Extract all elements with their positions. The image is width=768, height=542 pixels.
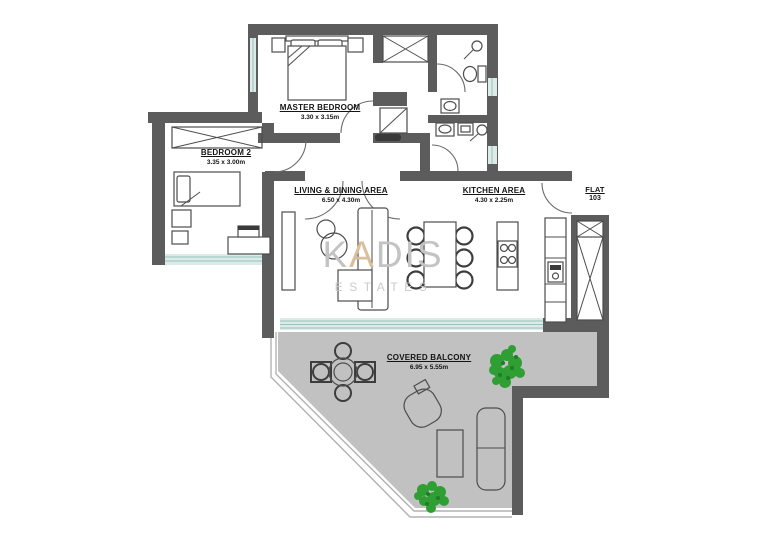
room-dims: 3.30 x 3.15m bbox=[280, 114, 361, 121]
label-covered-balcony: COVERED BALCONY 6.95 x 5.55m bbox=[387, 353, 471, 371]
label-flat-number: FLAT 103 bbox=[585, 185, 604, 202]
master-bed bbox=[272, 36, 363, 100]
room-name: BEDROOM 2 bbox=[201, 148, 251, 157]
room-dims: 6.95 x 5.55m bbox=[387, 364, 471, 371]
door-arc-bedroom2 bbox=[274, 140, 306, 172]
floor-plan: MASTER BEDROOM 3.30 x 3.15m BEDROOM 2 3.… bbox=[0, 0, 768, 542]
room-name: LIVING & DINING AREA bbox=[294, 186, 387, 195]
room-dims: 4.30 x 2.25m bbox=[463, 197, 526, 204]
room-dims: 6.50 x 4.30m bbox=[294, 197, 387, 204]
sink-icon bbox=[441, 99, 459, 113]
door-arc-entrance bbox=[542, 183, 572, 213]
door-arc-bathroom2 bbox=[432, 145, 458, 171]
watermark-a: A bbox=[349, 234, 376, 275]
kitchen-cabinets bbox=[545, 218, 566, 322]
window-bath-right-1 bbox=[488, 78, 497, 96]
watermark-subtitle: ESTATES bbox=[335, 280, 433, 294]
door-arc-bathroom1 bbox=[437, 64, 465, 92]
bedroom2-bed bbox=[174, 172, 240, 206]
watermark-dis: DIS bbox=[376, 234, 444, 275]
label-master-bedroom: MASTER BEDROOM 3.30 x 3.15m bbox=[280, 103, 361, 121]
label-living-dining: LIVING & DINING AREA 6.50 x 4.30m bbox=[294, 186, 387, 204]
label-bedroom-2: BEDROOM 2 3.35 x 3.00m bbox=[201, 148, 251, 166]
room-name: MASTER BEDROOM bbox=[280, 103, 361, 112]
flat-label: FLAT bbox=[585, 185, 604, 194]
toilet-icon bbox=[464, 66, 487, 82]
label-kitchen: KITCHEN AREA 4.30 x 2.25m bbox=[463, 186, 526, 204]
tv-unit bbox=[282, 212, 295, 290]
room-name: KITCHEN AREA bbox=[463, 186, 526, 195]
room-name: COVERED BALCONY bbox=[387, 353, 471, 362]
sink-icon-2 bbox=[436, 123, 454, 136]
flat-number: 103 bbox=[585, 195, 604, 202]
shower-icon bbox=[464, 41, 482, 59]
master-closet bbox=[380, 36, 428, 133]
bathroom-fixtures bbox=[436, 41, 487, 141]
window-bedroom2-bottom bbox=[165, 254, 262, 265]
watermark-k: K bbox=[322, 234, 349, 275]
bedroom2-nightstands bbox=[172, 210, 191, 244]
ac-unit bbox=[375, 134, 401, 141]
room-dims: 3.35 x 3.00m bbox=[201, 159, 251, 166]
elevator-shaft bbox=[577, 221, 603, 320]
window-master-left bbox=[250, 38, 256, 92]
kitchen-island bbox=[497, 222, 518, 290]
window-living-bottom bbox=[280, 318, 543, 330]
window-bath-right-2 bbox=[488, 146, 497, 164]
watermark-logo: KADIS bbox=[322, 234, 443, 276]
cabinet-icon bbox=[458, 123, 473, 135]
bedroom2-wardrobe bbox=[172, 127, 262, 148]
